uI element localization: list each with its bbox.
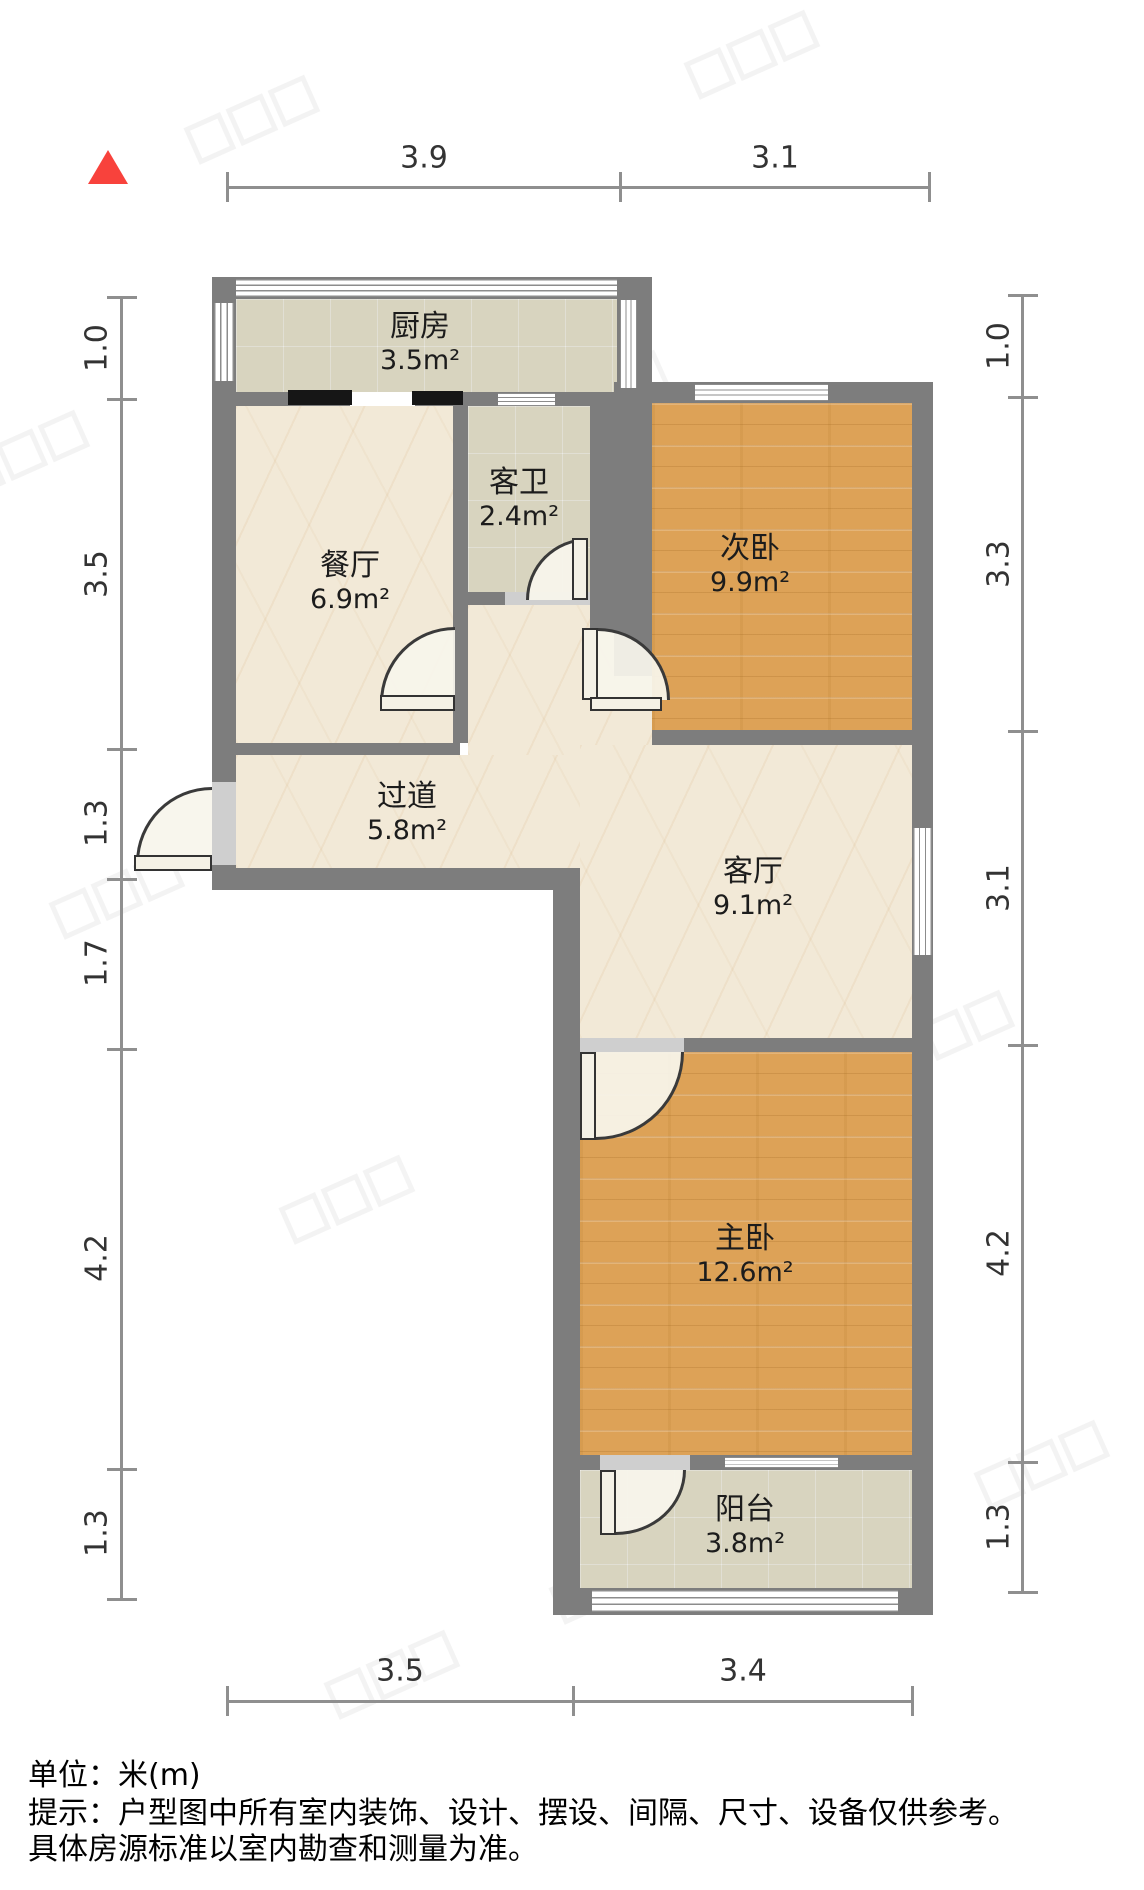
floor-plan-page: 厨房 3.5m² 餐厅 6.9m² 客卫 2.4m² 次卧 9.9m² 过道 5… [0,0,1144,1890]
entry-door-opening [212,782,236,865]
dimension-value: 3.1 [982,864,1017,912]
dimension-value: 1.7 [80,939,115,987]
dimension-tick [107,398,137,401]
bedroom2-window [695,384,828,401]
master-balcony-window [725,1457,838,1468]
balcony-door-leaf [600,1470,616,1535]
dimension-line-top [227,186,930,189]
dimension-tick [107,748,137,751]
kitchen-counter-bar [288,390,352,405]
room-area: 9.1m² [713,890,793,922]
balcony-window [592,1590,898,1612]
balcony-door-opening [600,1455,690,1470]
dimension-tick [1008,294,1038,297]
dimension-value: 4.2 [982,1229,1017,1277]
dimension-value: 3.5 [376,1654,424,1689]
room-name: 厨房 [380,309,460,345]
room-area: 9.9m² [710,567,790,599]
watermark [278,1147,441,1266]
dimension-line-right [1021,295,1024,1592]
bedroom2-door-threshold [590,697,662,711]
room-area: 2.4m² [479,501,559,533]
dimension-tick [107,1048,137,1051]
room-label-hallway: 过道 5.8m² [367,779,447,847]
entry-door-leaf [134,855,212,871]
wall-bedroom2-bottom [652,730,912,745]
dimension-line-left [120,297,123,1599]
dimension-tick [107,1468,137,1471]
dimension-value: 3.4 [719,1654,767,1689]
watermark [683,2,846,121]
watermark [183,67,346,186]
room-area: 6.9m² [310,584,390,616]
room-label-dining: 餐厅 6.9m² [310,548,390,616]
dimension-value: 4.2 [80,1234,115,1282]
room-name: 主卧 [696,1221,793,1257]
dimension-tick [1008,1044,1038,1047]
room-name: 餐厅 [310,548,390,584]
room-label-bathroom: 客卫 2.4m² [479,465,559,533]
master-door-opening [580,1038,684,1052]
room-label-kitchen: 厨房 3.5m² [380,309,460,377]
dimension-value: 3.3 [982,540,1017,588]
room-label-balcony: 阳台 3.8m² [705,1492,785,1560]
wall-hallway-bottom [212,868,553,890]
kitchen-left-window [214,303,234,381]
dimension-value: 3.9 [400,141,448,176]
living-room-window [913,828,932,955]
kitchen-top-window [236,279,617,297]
north-indicator [88,150,128,184]
dimension-value: 1.0 [982,322,1017,370]
room-name: 阳台 [705,1492,785,1528]
dining-door-leaf [380,695,455,711]
bathroom-transom-window [498,393,555,406]
dimension-tick [911,1686,914,1716]
bathroom-door-leaf [572,538,588,600]
room-name: 客厅 [713,854,793,890]
dimension-tick [619,172,622,202]
room-area: 3.5m² [380,345,460,377]
wall-master-left [553,868,580,1615]
dimension-tick [1008,396,1038,399]
kitchen-counter-bar [412,391,463,405]
dimension-value: 3.1 [751,141,799,176]
dimension-tick [1008,730,1038,733]
dimension-value: 3.5 [80,550,115,598]
dimension-tick [107,1598,137,1601]
room-area: 5.8m² [367,815,447,847]
dimension-tick [1008,1591,1038,1594]
entry-door-arc [136,787,212,863]
room-label-master: 主卧 12.6m² [696,1221,793,1289]
dimension-tick [107,878,137,881]
dimension-value: 1.0 [80,324,115,372]
dimension-tick [226,172,229,202]
disclaimer-line2: 具体房源标准以室内勘查和测量为准。 [28,1824,538,1868]
room-label-living: 客厅 9.1m² [713,854,793,922]
dimension-line-bottom [227,1700,913,1703]
dimension-tick [107,296,137,299]
room-label-bedroom2: 次卧 9.9m² [710,531,790,599]
dimension-value: 1.3 [80,1509,115,1557]
kitchen-right-window [620,300,637,388]
room-name: 客卫 [479,465,559,501]
watermark [0,402,117,521]
room-name: 次卧 [710,531,790,567]
room-area: 12.6m² [696,1257,793,1289]
master-door-leaf [580,1052,596,1140]
wall-dining-bottom [212,743,460,755]
bedroom2-door-leaf [582,628,598,700]
wall-right-outer-lower [912,1052,933,1615]
dimension-value: 1.3 [982,1503,1017,1551]
wall-dining-right [453,392,468,743]
dimension-tick [572,1686,575,1716]
room-area: 3.8m² [705,1528,785,1560]
room-name: 过道 [367,779,447,815]
dimension-tick [226,1686,229,1716]
dimension-tick [1008,1461,1038,1464]
kitchen-pass-opening [350,392,415,406]
dimension-tick [928,172,931,202]
dimension-value: 1.3 [80,799,115,847]
